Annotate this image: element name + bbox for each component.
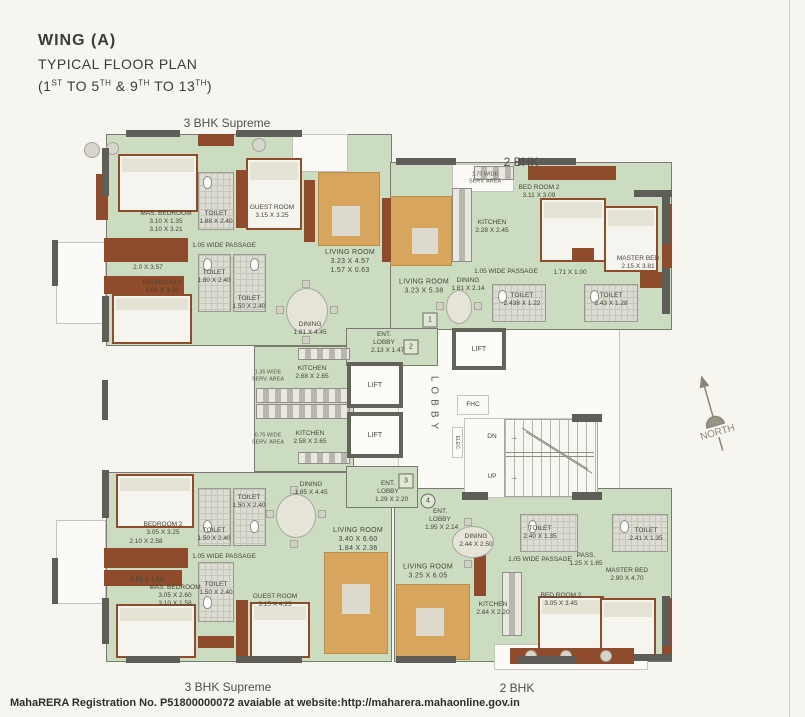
dining-table-graphic [446, 290, 472, 324]
room-label-toilet: TOILET 2.41 X 1.35 [629, 527, 662, 543]
room-label-bedroom-2: BED ROOM 2 3.11 X 3.09 [519, 184, 560, 200]
room-label-kitchen: KITCHEN 2.58 X 2.65 [293, 430, 326, 446]
room-name: MASTER BED [606, 567, 648, 575]
room-dims: 2.438 X 1.22 [504, 300, 541, 308]
room-name: LIVING ROOM [333, 527, 383, 536]
room-dims: 3.10 X 1.35 [140, 218, 191, 226]
room-name: TOILET [629, 527, 662, 535]
sofa-graphic [104, 548, 188, 568]
wall-segment [462, 492, 488, 500]
room-label-toilet: TOILET 2.43 X 1.28 [594, 292, 627, 308]
room-dims: 3.15 X 4.25 [253, 601, 297, 609]
room-label-toilet: TOILET 2.438 X 1.22 [504, 292, 541, 308]
room-dims: 1.29 X 2.20 [375, 496, 401, 504]
room-label-master-bed: MASTER BED 2.15 X 3.81 [617, 255, 659, 271]
wardrobe-graphic [198, 134, 234, 146]
room-label-serv-area: 1.75 WIDE SERV. AREA [467, 171, 503, 184]
fhc-label: FHC [466, 401, 479, 409]
room-name: BEDROOM 2 [142, 279, 181, 287]
chair-graphic [266, 510, 274, 518]
dining-table-graphic [276, 494, 316, 538]
wall-segment [52, 558, 58, 604]
room-label-bedroom-2: BEDROOM 2 3.05 X 3.25 [143, 521, 182, 537]
dresser-graphic [572, 248, 594, 262]
room-dims: 2.41 X 1.35 [629, 535, 662, 543]
room-name: DINING [293, 321, 326, 329]
room-name: BEDROOM 2 [143, 521, 182, 529]
room-name: DINING [459, 533, 492, 541]
dn-label: DN [487, 433, 496, 441]
room-name: TOILET [199, 210, 232, 218]
floors-text: & 9 [111, 78, 138, 94]
sofa-graphic [382, 198, 391, 262]
lift-label: LIFT [472, 346, 486, 353]
room-name: 1.05 WIDE PASSAGE [474, 268, 538, 276]
room-dims: 1.80 X 2.40 [197, 277, 230, 285]
flat-number-4: 4 [421, 494, 436, 509]
room-label-kitchen: KITCHEN 2.28 X 2.45 [475, 219, 508, 235]
room-name: TOILET [594, 292, 627, 300]
room-label-balcony-dims: 2.10 X 2.58 [129, 538, 162, 546]
room-name: KITCHEN [475, 219, 508, 227]
room-name: MASTER BED [617, 255, 659, 263]
room-name: LIVING ROOM [403, 563, 453, 572]
room-dims: 2.68 X 2.65 [295, 373, 328, 381]
floors-sup: TH [138, 78, 150, 87]
up-arrow-icon: → [510, 473, 518, 482]
room-dims: 1.85 X 4.45 [294, 489, 327, 497]
wall-segment [102, 296, 109, 342]
room-dims: 2.28 X 2.45 [475, 227, 508, 235]
room-label-living-room: LIVING ROOM 3.25 X 6.05 [403, 563, 453, 581]
chair-graphic [290, 540, 298, 548]
rera-registration-text: MahaRERA Registration No. P51800000072 a… [10, 697, 520, 709]
planter-icon [600, 650, 612, 662]
wc-icon [620, 520, 629, 533]
room-label-living-room: LIVING ROOM 3.23 X 4.57 1.57 X 0.63 [325, 249, 375, 275]
room-dims: 1.84 X 2.36 [333, 544, 383, 553]
wall-segment [396, 656, 456, 663]
room-label-kitchen: KITCHEN 2.84 X 2.20 [476, 601, 509, 617]
room-label-toilet: TOILET 1.50 X 2.40 [199, 581, 232, 597]
room-dims: 3.15 X 3.25 [250, 212, 294, 220]
room-dims: 3.23 X 5.38 [399, 287, 449, 296]
room-label-passage: 1.05 WIDE PASSAGE [508, 556, 572, 564]
flat-number-3: 3 [399, 474, 414, 489]
unit-label-3bhk-top: 3 BHK Supreme [184, 116, 271, 130]
room-label-dining: DINING 1.81 X 4.45 [293, 321, 326, 337]
planter-icon [252, 138, 266, 152]
wc-icon [203, 176, 212, 189]
wall-segment [236, 130, 302, 137]
room-dims: 2.84 X 2.20 [476, 609, 509, 617]
planter-icon [84, 142, 100, 158]
room-label-kitchen: KITCHEN 2.68 X 2.65 [295, 365, 328, 381]
room-name: GUEST ROOM [250, 204, 294, 212]
room-name: KITCHEN [476, 601, 509, 609]
lift-2: LIFT [347, 412, 403, 458]
room-label-bedroom-2: BED ROOM 2 3.05 X 3.45 [541, 592, 582, 608]
room-dims: 1.57 X 0.63 [325, 266, 375, 275]
bed-graphic [116, 604, 196, 658]
room-name: KITCHEN [295, 365, 328, 373]
room-name: LIVING ROOM [325, 249, 375, 258]
kitchen-counter [452, 188, 472, 262]
room-name: TOILET [232, 295, 265, 303]
room-dims: 1.50 X 2.40 [232, 303, 265, 311]
room-dims: 3.05 X 3.45 [541, 600, 582, 608]
room-name: TOILET [232, 494, 265, 502]
room-name: ENT. LOBBY [371, 331, 397, 347]
wall-segment [102, 148, 109, 196]
room-dims: 2.43 X 1.28 [594, 300, 627, 308]
wall-segment [662, 268, 670, 314]
plan-title: TYPICAL FLOOR PLAN [38, 56, 212, 72]
wall-segment [102, 470, 109, 518]
chair-graphic [302, 280, 310, 288]
floors-text: (1 [38, 78, 51, 94]
sofa-graphic [104, 238, 188, 262]
wall-segment [662, 196, 670, 244]
room-name: BED ROOM 2 [519, 184, 560, 192]
room-dims: 1.50 X 2.40 [199, 589, 232, 597]
room-label-master-bed: MASTER BED 2.90 X 4.70 [606, 567, 648, 583]
staircase [504, 419, 598, 497]
room-label-pass-dims: 1.71 X 1.00 [553, 269, 586, 277]
wall-segment [572, 492, 602, 500]
room-label-pass: PASS. 1.25 X 1.65 [569, 552, 602, 568]
chair-graphic [464, 560, 472, 568]
wardrobe-graphic [236, 170, 246, 228]
room-dims: 1.88 X 2.40 [199, 218, 232, 226]
room-dims: 1.95 X 2.14 [425, 524, 455, 532]
chair-graphic [474, 302, 482, 310]
room-label-dining: DINING 1.85 X 4.45 [294, 481, 327, 497]
room-name: TOILET [523, 525, 556, 533]
wall-segment [572, 414, 602, 422]
room-dims: 3.05 X 3.25 [143, 529, 182, 537]
kitchen-counter [298, 452, 350, 464]
elec-label: ELEC. [454, 436, 460, 450]
room-label-toilet: TOILET 1.50 X 2.40 [232, 494, 265, 510]
lobby-label: LOBBY [429, 376, 440, 434]
room-name: ENT. LOBBY [425, 508, 455, 524]
wall-segment [634, 654, 672, 661]
bed-graphic [112, 294, 192, 344]
sofa-graphic [304, 180, 315, 242]
north-arrow-icon: NORTH [684, 368, 740, 458]
chair-graphic [276, 306, 284, 314]
room-label-bedroom-2: BEDROOM 2 3.05 X 3.25 [142, 279, 181, 295]
floors-text: ) [207, 78, 212, 94]
room-dims: 1.50 X 2.40 [197, 535, 230, 543]
wall-segment [396, 158, 456, 165]
room-label-toilet: TOILET 2.40 X 1.35 [523, 525, 556, 541]
kitchen-counter [256, 388, 350, 403]
room-name: ENT. LOBBY [375, 480, 401, 496]
dn-arrow-icon: → [510, 433, 518, 442]
room-dims: 3.10 X 3.21 [140, 226, 191, 234]
rug-center-top-right [412, 228, 438, 254]
room-name: MAS. BEDROOM [149, 584, 200, 592]
rug-center-top-left [332, 206, 360, 236]
unit-label-2bhk-bottom: 2 BHK [500, 681, 535, 695]
wc-icon [203, 596, 212, 609]
room-label-toilet: TOILET 1.80 X 2.40 [197, 269, 230, 285]
room-name: DINING [294, 481, 327, 489]
room-label-dining: DINING 1.81 X 2.14 [451, 277, 484, 293]
lift-label: LIFT [368, 432, 382, 439]
room-dims: 2.10 X 2.58 [129, 538, 162, 546]
room-name: LIVING ROOM [399, 278, 449, 287]
room-dims: 2.15 X 3.81 [617, 263, 659, 271]
chair-graphic [436, 302, 444, 310]
room-label-toilet: TOILET 1.50 X 2.40 [232, 295, 265, 311]
room-name: GUEST ROOM [253, 593, 297, 601]
room-name: TOILET [504, 292, 541, 300]
bed-graphic [118, 154, 198, 212]
page-border [789, 0, 790, 717]
room-dims: 2.40 X 1.35 [523, 533, 556, 541]
floors-text: TO 5 [63, 78, 100, 94]
room-name: 1.05 WIDE PASSAGE [192, 553, 256, 561]
rug-center-bottom-left [342, 584, 370, 614]
wc-icon [250, 520, 259, 533]
room-label-balcony-dims: 2.0 X 3.57 [133, 264, 163, 272]
room-dims: 2.44 X 2.50 [459, 541, 492, 549]
wall-segment [126, 656, 180, 663]
room-dims: 2.0 X 3.57 [133, 264, 163, 272]
room-dims: 3.05 X 3.25 [142, 287, 181, 295]
room-dims: 3.11 X 3.09 [519, 192, 560, 200]
room-label-ent-lobby: ENT. LOBBY 1.95 X 2.14 [425, 508, 455, 532]
room-dims: 3.25 X 6.05 [403, 572, 453, 581]
room-dims: 3.40 X 6.60 [333, 536, 383, 545]
room-label-ent-lobby: ENT. LOBBY 2.13 X 1.47 [371, 331, 397, 355]
floor-plan: WING (A) TYPICAL FLOOR PLAN (1ST TO 5TH … [0, 0, 805, 717]
room-dims: 1.81 X 4.45 [293, 329, 326, 337]
wardrobe-graphic [528, 166, 616, 180]
rug-center-bottom-right [416, 608, 444, 636]
room-name: DN [487, 433, 496, 441]
room-dims: 2.58 X 2.65 [293, 438, 326, 446]
balcony-top-left [56, 242, 106, 324]
room-label-mas-bedroom: MAS. BEDROOM 3.10 X 1.35 3.10 X 3.21 [140, 210, 191, 234]
wall-segment [126, 130, 180, 137]
unit-label-2bhk-top: 2 BHK [504, 155, 539, 169]
floors-sup: ST [51, 78, 62, 87]
room-label-serv-area: 1.35 WIDE SERV. AREA [250, 369, 286, 382]
room-dims: 2.13 X 1.47 [371, 347, 397, 355]
wall-segment [518, 656, 576, 663]
room-dims: 3.10 X 1.58 [149, 600, 200, 608]
wall-segment [102, 380, 108, 420]
room-name: TOILET [199, 581, 232, 589]
room-dims: 3.05 X 2.60 [149, 592, 200, 600]
flat-number-2: 2 [404, 340, 419, 355]
wall-segment [52, 240, 58, 286]
room-label-passage: 1.05 WIDE PASSAGE [192, 553, 256, 561]
room-label-living-room: LIVING ROOM 3.40 X 6.60 1.84 X 2.36 [333, 527, 383, 553]
wc-icon [250, 258, 259, 271]
room-label-ent-lobby: ENT. LOBBY 1.29 X 2.20 [375, 480, 401, 504]
room-label-serv-area: 0.75 WIDE SERV. AREA [250, 432, 286, 445]
balcony-bottom-left [56, 520, 106, 604]
floors-sup: TH [100, 78, 112, 87]
chair-graphic [318, 510, 326, 518]
room-name: PASS. [569, 552, 602, 560]
room-dims: 1.71 X 1.00 [553, 269, 586, 277]
chair-graphic [464, 518, 472, 526]
kitchen-counter [298, 348, 350, 360]
up-label: UP [487, 473, 496, 481]
lift-3: LIFT [452, 328, 506, 370]
floors-text: TO 13 [150, 78, 195, 94]
chair-graphic [330, 306, 338, 314]
room-name: TOILET [197, 269, 230, 277]
room-name: BED ROOM 2 [541, 592, 582, 600]
room-dims: 2.90 X 4.70 [606, 575, 648, 583]
stair-landing-line [506, 452, 594, 457]
room-dims: 3.23 X 4.57 [325, 258, 375, 267]
wall-segment [662, 596, 670, 646]
flat-number-1: 1 [423, 313, 438, 328]
kitchen-counter [256, 404, 350, 419]
wall-segment [236, 656, 302, 663]
room-name: UP [487, 473, 496, 481]
room-label-guest-room: GUEST ROOM 3.15 X 4.25 [253, 593, 297, 609]
room-name: DINING [451, 277, 484, 285]
lift-1: LIFT [347, 362, 403, 408]
room-label-passage: 1.05 WIDE PASSAGE [474, 268, 538, 276]
room-dims: 1.50 X 2.40 [232, 502, 265, 510]
room-name: FHC [466, 401, 479, 409]
room-label-guest-room: GUEST ROOM 3.15 X 3.25 [250, 204, 294, 220]
room-label-toilet: TOILET 1.88 X 2.40 [199, 210, 232, 226]
wall-segment [102, 598, 109, 644]
lift-label: LIFT [368, 382, 382, 389]
drawing-title: WING (A) TYPICAL FLOOR PLAN (1ST TO 5TH … [38, 32, 212, 94]
room-label-living-room: LIVING ROOM 3.23 X 5.38 [399, 278, 449, 296]
wing-title: WING (A) [38, 32, 212, 50]
room-label-dining: DINING 2.44 X 2.50 [459, 533, 492, 549]
room-label-mas-bedroom: MAS. BEDROOM 3.05 X 2.60 3.10 X 1.58 [149, 584, 200, 608]
unit-label-3bhk-bottom: 3 BHK Supreme [185, 680, 272, 694]
room-name: MAS. BEDROOM [140, 210, 191, 218]
room-name: 1.05 WIDE PASSAGE [192, 242, 256, 250]
floors-sup: TH [195, 78, 207, 87]
chair-graphic [302, 336, 310, 344]
room-dims: 1.81 X 2.14 [451, 285, 484, 293]
room-label-passage: 1.05 WIDE PASSAGE [192, 242, 256, 250]
room-name: KITCHEN [293, 430, 326, 438]
bed-graphic [250, 602, 310, 658]
room-label-toilet: TOILET 1.50 X 2.40 [197, 527, 230, 543]
wardrobe-graphic [236, 600, 248, 658]
room-dims: 1.25 X 1.65 [569, 560, 602, 568]
wardrobe-graphic [198, 636, 234, 648]
room-name: 1.05 WIDE PASSAGE [508, 556, 572, 564]
room-name: TOILET [197, 527, 230, 535]
floors-title: (1ST TO 5TH & 9TH TO 13TH) [38, 78, 212, 94]
